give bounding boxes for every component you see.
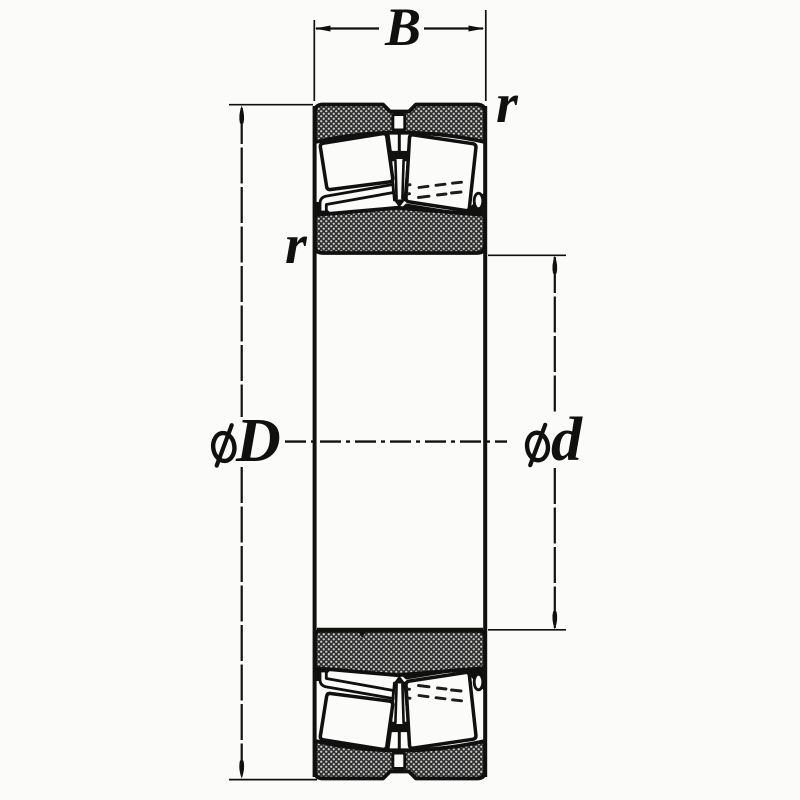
svg-text:D: D: [235, 407, 281, 475]
svg-text:r: r: [496, 73, 519, 135]
svg-text:r: r: [285, 214, 308, 276]
svg-text:B: B: [384, 0, 421, 57]
svg-text:d: d: [551, 406, 583, 474]
